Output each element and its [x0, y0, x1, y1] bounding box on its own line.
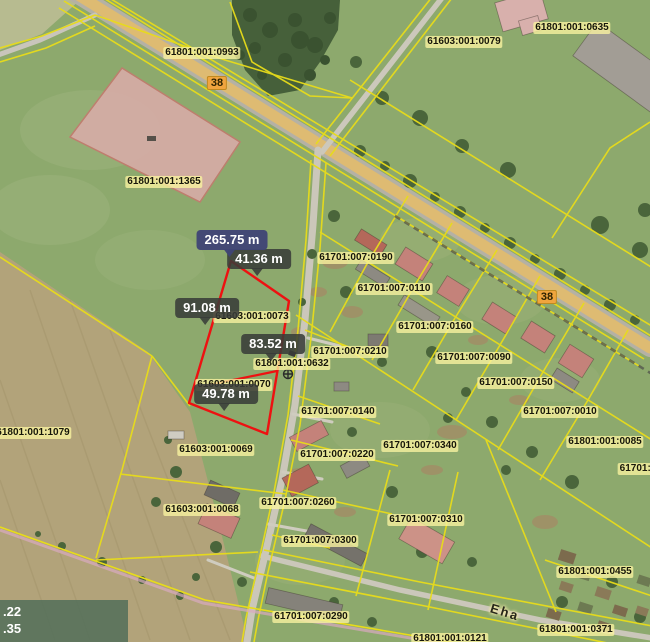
parcel-label: 61801:001:1365: [125, 176, 202, 188]
parcel-label: 61701:007:0190: [317, 252, 394, 264]
parcel-label: 61701:007:0140: [299, 406, 376, 418]
measurement-segment-tooltip: 91.08 m: [175, 298, 239, 318]
parcel-label: 61701:007:0150: [477, 377, 554, 389]
parcel-label: 61701:007:0340: [381, 440, 458, 452]
parcel-label: 61801:001:0371: [537, 624, 614, 636]
parcel-label: 61701:0: [618, 463, 650, 475]
measurement-segment-tooltip: 83.52 m: [241, 334, 305, 354]
parcel-label: 61701:007:0090: [435, 352, 512, 364]
parcel-label: 61801:001:0993: [163, 47, 240, 59]
map-viewport[interactable]: 61801:001:099361603:001:007961801:001:06…: [0, 0, 650, 642]
parcel-label: 61801:001:0455: [556, 566, 633, 578]
road-number-shield: 38: [207, 76, 227, 90]
parcel-label: 61801:001:0121: [411, 633, 488, 642]
parcel-label: 61701:007:0260: [259, 497, 336, 509]
measurement-total-tooltip: 265.75 m: [197, 230, 268, 250]
parcel-label: 61701:007:0160: [396, 321, 473, 333]
parcel-label: 61701:007:0110: [356, 283, 433, 295]
parcel-label: 61603:001:0079: [425, 36, 502, 48]
parcel-label: 61701:007:0310: [387, 514, 464, 526]
parcel-label: 61701:007:0220: [298, 449, 375, 461]
parcel-label: 61701:007:0210: [311, 346, 388, 358]
parcel-label: 61801:001:0635: [533, 22, 610, 34]
coordinate-readout: .22 .35: [0, 600, 128, 642]
parcel-label: 61801:001:1079: [0, 427, 72, 439]
measurement-segment-tooltip: 49.78 m: [194, 384, 258, 404]
coordinate-line-2: .35: [3, 620, 128, 637]
measurement-segment-tooltip: 41.36 m: [227, 249, 291, 269]
parcel-label: 61801:001:0085: [566, 436, 643, 448]
parcel-label: 61603:001:0068: [163, 504, 240, 516]
road-number-shield: 38: [537, 290, 557, 304]
parcel-label: 61701:007:0010: [521, 406, 598, 418]
parcel-label: 61701:007:0300: [281, 535, 358, 547]
parcel-label: 61603:001:0069: [177, 444, 254, 456]
coordinate-line-1: .22: [3, 603, 128, 620]
parcel-label: 61701:007:0290: [272, 611, 349, 623]
